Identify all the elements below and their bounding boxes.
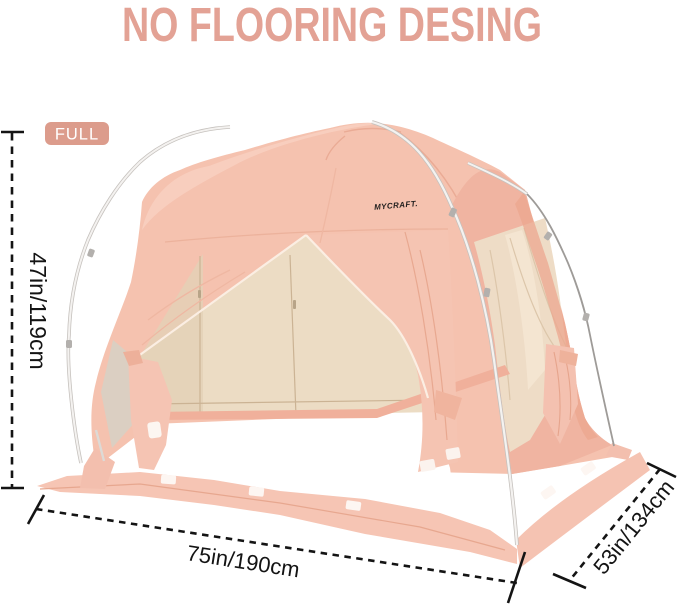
svg-text:NO FLOORING DESING: NO FLOORING DESING (122, 0, 542, 52)
svg-text:47in/119cm: 47in/119cm (25, 252, 51, 369)
svg-text:75in/190cm: 75in/190cm (185, 540, 301, 582)
svg-text:FULL: FULL (55, 126, 99, 144)
